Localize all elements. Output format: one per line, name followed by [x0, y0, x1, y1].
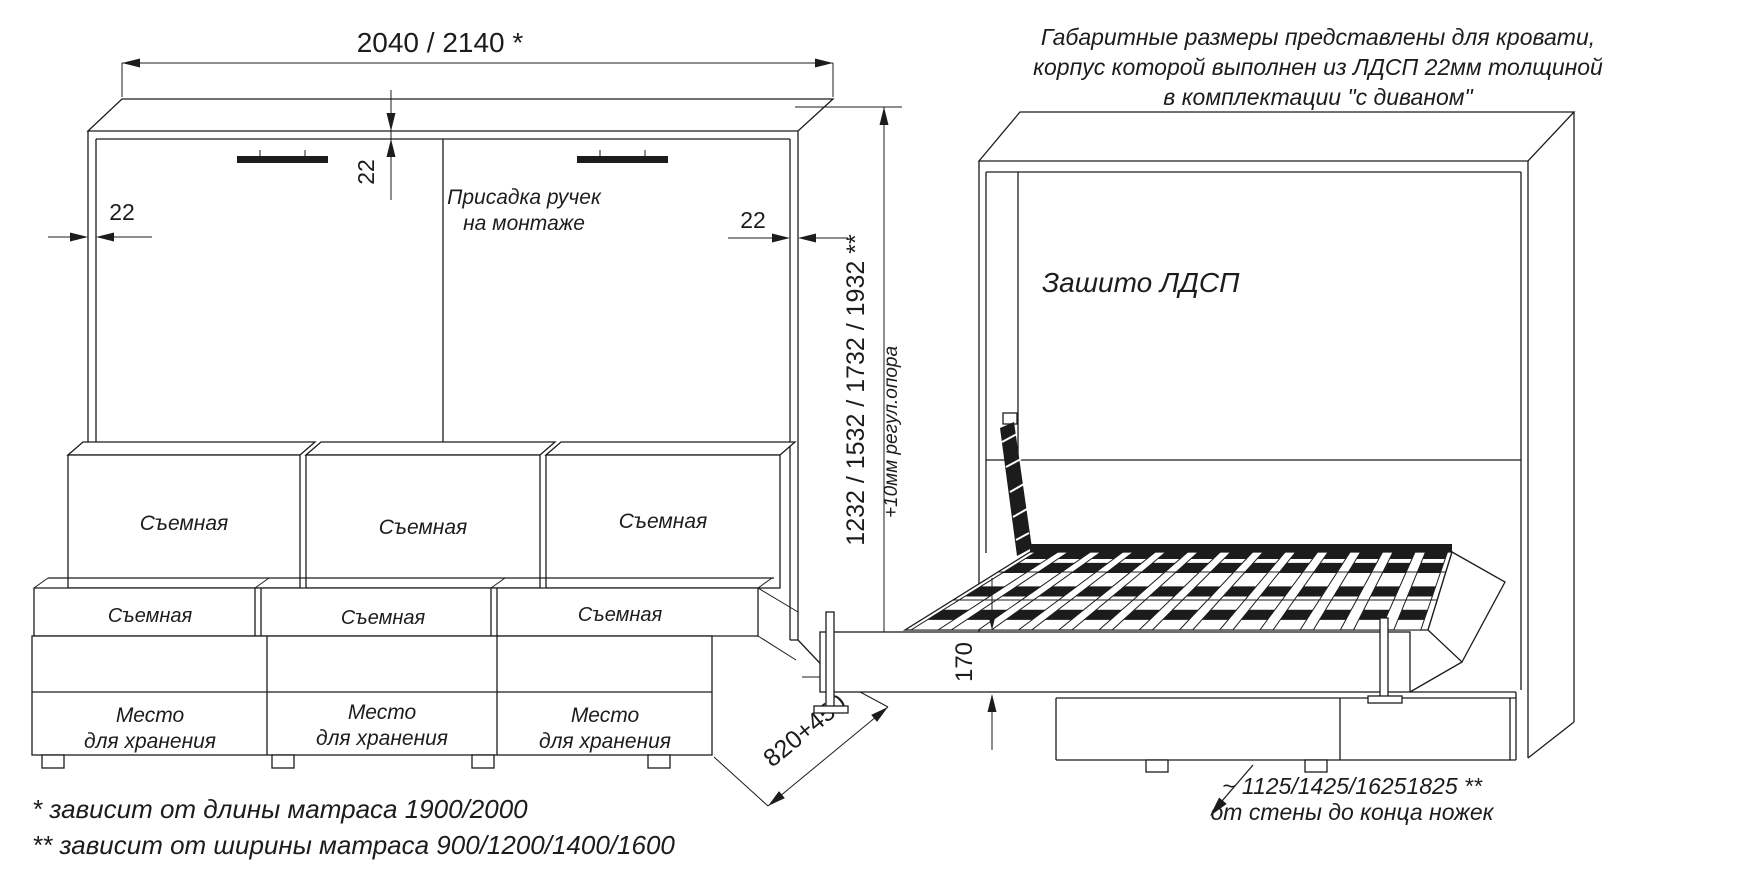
width-dimension: 2040 / 2140 *	[357, 27, 524, 58]
right-panel-thickness-dimension: 22	[740, 207, 766, 233]
gabarit-note-line3: в комплектации "с диваном"	[1163, 84, 1474, 110]
height-dimension-group: 1232 / 1532 / 1732 / 1932 ** +10мм регул…	[795, 107, 905, 677]
door-handle-left	[237, 150, 328, 163]
depth-dimension: 820+450	[758, 689, 851, 773]
seat-cushion-label: Съемная	[578, 604, 663, 626]
dim-arrow-right	[815, 59, 833, 68]
furniture-technical-drawing: 2040 / 2140 * 22 Присадка ручек на монта…	[0, 0, 1755, 885]
seat-cushion-label: Съемная	[108, 605, 193, 627]
legs-distance-annotation: ~ 1125/1425/16251825 ** от стены до конц…	[1210, 765, 1495, 825]
seat-cushion-label: Съемная	[341, 607, 426, 629]
storage-label-line2: для хранения	[539, 730, 671, 753]
storage-label-line1: Место	[348, 701, 417, 724]
footnote-mattress-length: * зависит от длины матраса 1900/2000	[32, 794, 528, 824]
storage-label-line2: для хранения	[84, 730, 216, 753]
back-cushion-label: Съемная	[379, 516, 468, 539]
sofa-foot	[472, 755, 494, 768]
back-cushion-label: Съемная	[140, 512, 229, 535]
sofa-foot	[42, 755, 64, 768]
legs-distance-line2: от стены до конца ножек	[1211, 799, 1495, 825]
rail-height-dimension: 170	[951, 642, 978, 682]
left-elevation-drawing: 2040 / 2140 * 22 Присадка ручек на монта…	[32, 27, 905, 860]
door-handle-right	[577, 150, 668, 163]
depth-dimension-group: 820+450	[714, 679, 888, 806]
storage-label-line1: Место	[116, 704, 185, 727]
storage-label-line1: Место	[571, 704, 640, 727]
bed-leg-right	[1380, 618, 1388, 698]
height-dimension: 1232 / 1532 / 1732 / 1932 **	[842, 234, 870, 546]
panel-label: Зашито ЛДСП	[1042, 267, 1240, 298]
sofa-foot	[648, 755, 670, 768]
gabarit-note-line1: Габаритные размеры представлены для кров…	[1041, 24, 1595, 50]
footnote-mattress-width: ** зависит от ширины матраса 900/1200/14…	[32, 830, 675, 860]
handle-note-line2: на монтаже	[463, 212, 585, 235]
right-perspective-drawing: Габаритные размеры представлены для кров…	[814, 24, 1603, 825]
bed-platform	[820, 544, 1505, 692]
bed-leg-left	[826, 612, 834, 708]
legs-distance-line1: ~ 1125/1425/16251825 **	[1222, 773, 1483, 799]
bed-back-rail	[1030, 544, 1452, 552]
storage-label-line2: для хранения	[316, 727, 448, 750]
base-foot	[1305, 760, 1327, 772]
gabarit-note-line2: корпус которой выполнен из ЛДСП 22мм тол…	[1033, 54, 1603, 80]
left-panel-thickness-dimension: 22	[109, 199, 135, 225]
bed-leg-right-foot	[1368, 696, 1402, 703]
sofa-base: Место для хранения Место для хранения Ме…	[32, 636, 712, 768]
top-panel-thickness-dimension: 22	[353, 159, 379, 185]
height-adjust-note: +10мм регул.опора	[881, 346, 902, 518]
back-cushions: Съемная Съемная Съемная	[68, 442, 795, 588]
back-cushion-label: Съемная	[619, 510, 708, 533]
bed-base	[1056, 692, 1516, 772]
bed-side-rail	[820, 632, 1410, 692]
bed-leg-left-foot	[814, 706, 848, 713]
gas-lift-mechanism	[1000, 413, 1032, 556]
handle-note-line1: Присадка ручек	[447, 186, 602, 209]
base-foot	[1146, 760, 1168, 772]
sofa-foot	[272, 755, 294, 768]
dim-arrow-left	[122, 59, 140, 68]
